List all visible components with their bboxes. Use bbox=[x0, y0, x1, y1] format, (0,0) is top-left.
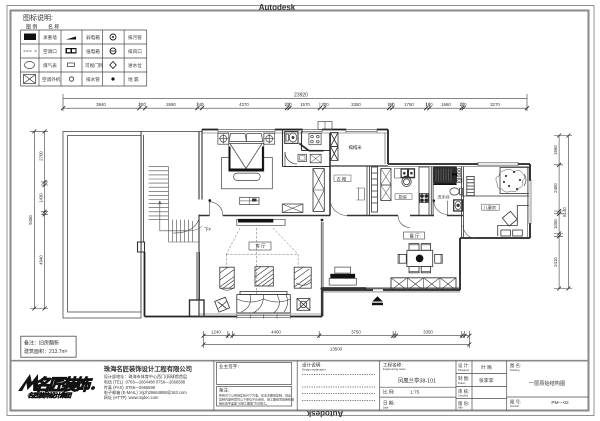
svg-text:1560: 1560 bbox=[553, 145, 558, 155]
svg-text:2690: 2690 bbox=[166, 102, 176, 107]
svg-text:地 漏: 地 漏 bbox=[128, 76, 139, 83]
svg-text:电话 (TEL) :0756—2664488 0756—2: 电话 (TEL) :0756—2664488 0756—2666588 bbox=[104, 379, 186, 385]
svg-text:儿童房: 儿童房 bbox=[484, 204, 497, 211]
svg-text:凤凰兰亭38-101: 凤凰兰亭38-101 bbox=[398, 377, 436, 385]
svg-text:组长签字盖章“可施工图章”方可施工。: 组长签字盖章“可施工图章”方可施工。 bbox=[219, 401, 269, 406]
svg-text:备注：旧房翻新: 备注：旧房翻新 bbox=[24, 340, 59, 347]
svg-text:Number: Number bbox=[510, 404, 519, 408]
svg-text:Autodesk: Autodesk bbox=[259, 3, 296, 12]
svg-text:Engineering name: Engineering name bbox=[383, 367, 406, 371]
svg-text:220: 220 bbox=[321, 102, 329, 107]
svg-text:图标说明:: 图标说明: bbox=[23, 13, 53, 22]
svg-text:2410: 2410 bbox=[553, 257, 558, 267]
svg-text:可视门铃: 可视门铃 bbox=[85, 62, 104, 69]
svg-text:4370: 4370 bbox=[239, 102, 249, 107]
svg-text:排污管: 排污管 bbox=[128, 34, 142, 41]
svg-text:传真 (FAX) :0756—2666599: 传真 (FAX) :0756—2666599 bbox=[104, 384, 156, 390]
svg-text:Affir: Affir bbox=[458, 406, 463, 410]
svg-text:一层原始结构图: 一层原始结构图 bbox=[529, 379, 565, 387]
svg-text:客 厅: 客 厅 bbox=[256, 242, 267, 249]
svg-text:洗手间: 洗手间 bbox=[438, 194, 450, 200]
svg-text:空调口: 空调口 bbox=[43, 48, 57, 55]
svg-text:制 图:: 制 图: bbox=[458, 375, 469, 382]
svg-text:Design explanation: Design explanation bbox=[302, 368, 326, 372]
svg-text:网址 (HTTP) :www.mjdec.com: 网址 (HTTP) :www.mjdec.com bbox=[104, 394, 159, 400]
svg-text:业主签字：: 业主签字： bbox=[219, 363, 242, 369]
svg-text:1660: 1660 bbox=[441, 102, 451, 107]
svg-text:排风口: 排风口 bbox=[128, 48, 142, 55]
svg-text:名 称: 名 称 bbox=[48, 24, 59, 31]
svg-text:名匠装饰: 名匠装饰 bbox=[33, 375, 94, 394]
svg-text:4940: 4940 bbox=[39, 255, 44, 265]
svg-text:电子邮箱 (E-MAIL) :mjzh26664888@16: 电子邮箱 (E-MAIL) :mjzh26664888@163.com bbox=[104, 389, 187, 395]
svg-text:3750: 3750 bbox=[351, 330, 361, 335]
svg-text:Date: Date bbox=[383, 406, 389, 410]
svg-text:PM—02: PM—02 bbox=[551, 400, 569, 406]
svg-text:珠海名匠装饰设计工程有限公司: 珠海名匠装饰设计工程有限公司 bbox=[104, 364, 192, 373]
svg-text:比 例:: 比 例: bbox=[383, 389, 395, 396]
svg-text:Checked: Checked bbox=[458, 394, 469, 398]
svg-text:Autodesk: Autodesk bbox=[306, 409, 343, 418]
svg-text:3350: 3350 bbox=[351, 102, 361, 107]
svg-text:3350: 3350 bbox=[423, 330, 433, 335]
svg-text:Drawn: Drawn bbox=[458, 381, 466, 385]
svg-text:叶 晰: 叶 晰 bbox=[481, 364, 492, 371]
svg-text:3940: 3940 bbox=[96, 102, 106, 107]
svg-text:进水位: 进水位 bbox=[128, 62, 142, 69]
svg-text:3270: 3270 bbox=[490, 102, 500, 107]
svg-text:张李李: 张李李 bbox=[479, 377, 494, 384]
svg-text:备注:: 备注: bbox=[219, 387, 229, 394]
svg-text:8140: 8140 bbox=[562, 207, 567, 217]
svg-text:4400: 4400 bbox=[271, 330, 281, 335]
svg-text:餐 厅: 餐 厅 bbox=[410, 232, 421, 239]
svg-text:9450: 9450 bbox=[28, 215, 33, 225]
svg-text:排水管: 排水管 bbox=[86, 76, 100, 83]
svg-text:名匠装饰设计集团: 名匠装饰设计集团 bbox=[27, 391, 73, 400]
svg-text:强电箱: 强电箱 bbox=[86, 48, 100, 55]
svg-text:煤气表: 煤气表 bbox=[43, 62, 57, 69]
svg-text:图 名:: 图 名: bbox=[510, 362, 521, 369]
svg-text:1050: 1050 bbox=[553, 219, 558, 229]
svg-text:Designed: Designed bbox=[458, 368, 470, 372]
svg-text:2460: 2460 bbox=[553, 183, 558, 193]
svg-text:13500: 13500 bbox=[330, 347, 343, 352]
svg-text:弱电箱: 弱电箱 bbox=[86, 34, 100, 41]
svg-text:1750: 1750 bbox=[404, 102, 414, 107]
svg-text:厨房: 厨房 bbox=[399, 193, 407, 200]
svg-text:1240: 1240 bbox=[211, 330, 221, 335]
svg-text:设 计:: 设 计: bbox=[458, 362, 469, 369]
svg-text:图 例: 图 例 bbox=[26, 24, 37, 31]
svg-text:2700: 2700 bbox=[39, 151, 44, 161]
svg-text:衣 帽: 衣 帽 bbox=[337, 175, 347, 182]
svg-text:承重墙: 承重墙 bbox=[43, 34, 57, 41]
svg-text:1:75: 1:75 bbox=[410, 390, 420, 396]
svg-text:空调外机: 空调外机 bbox=[42, 76, 61, 83]
svg-text:榻榻米: 榻榻米 bbox=[349, 144, 363, 151]
svg-text:1570: 1570 bbox=[300, 102, 310, 107]
svg-text:Drawing: Drawing bbox=[510, 368, 520, 372]
svg-text:建筑面积：213.7m²: 建筑面积：213.7m² bbox=[24, 348, 68, 355]
svg-text:下F: 下F bbox=[204, 227, 211, 233]
svg-text:1430: 1430 bbox=[39, 193, 44, 203]
svg-text:23920: 23920 bbox=[294, 93, 308, 99]
svg-text:设计部地址：珠海市体育中心西门(网球馆首层: 设计部地址：珠海市体育中心西门(网球馆首层 bbox=[104, 373, 187, 379]
